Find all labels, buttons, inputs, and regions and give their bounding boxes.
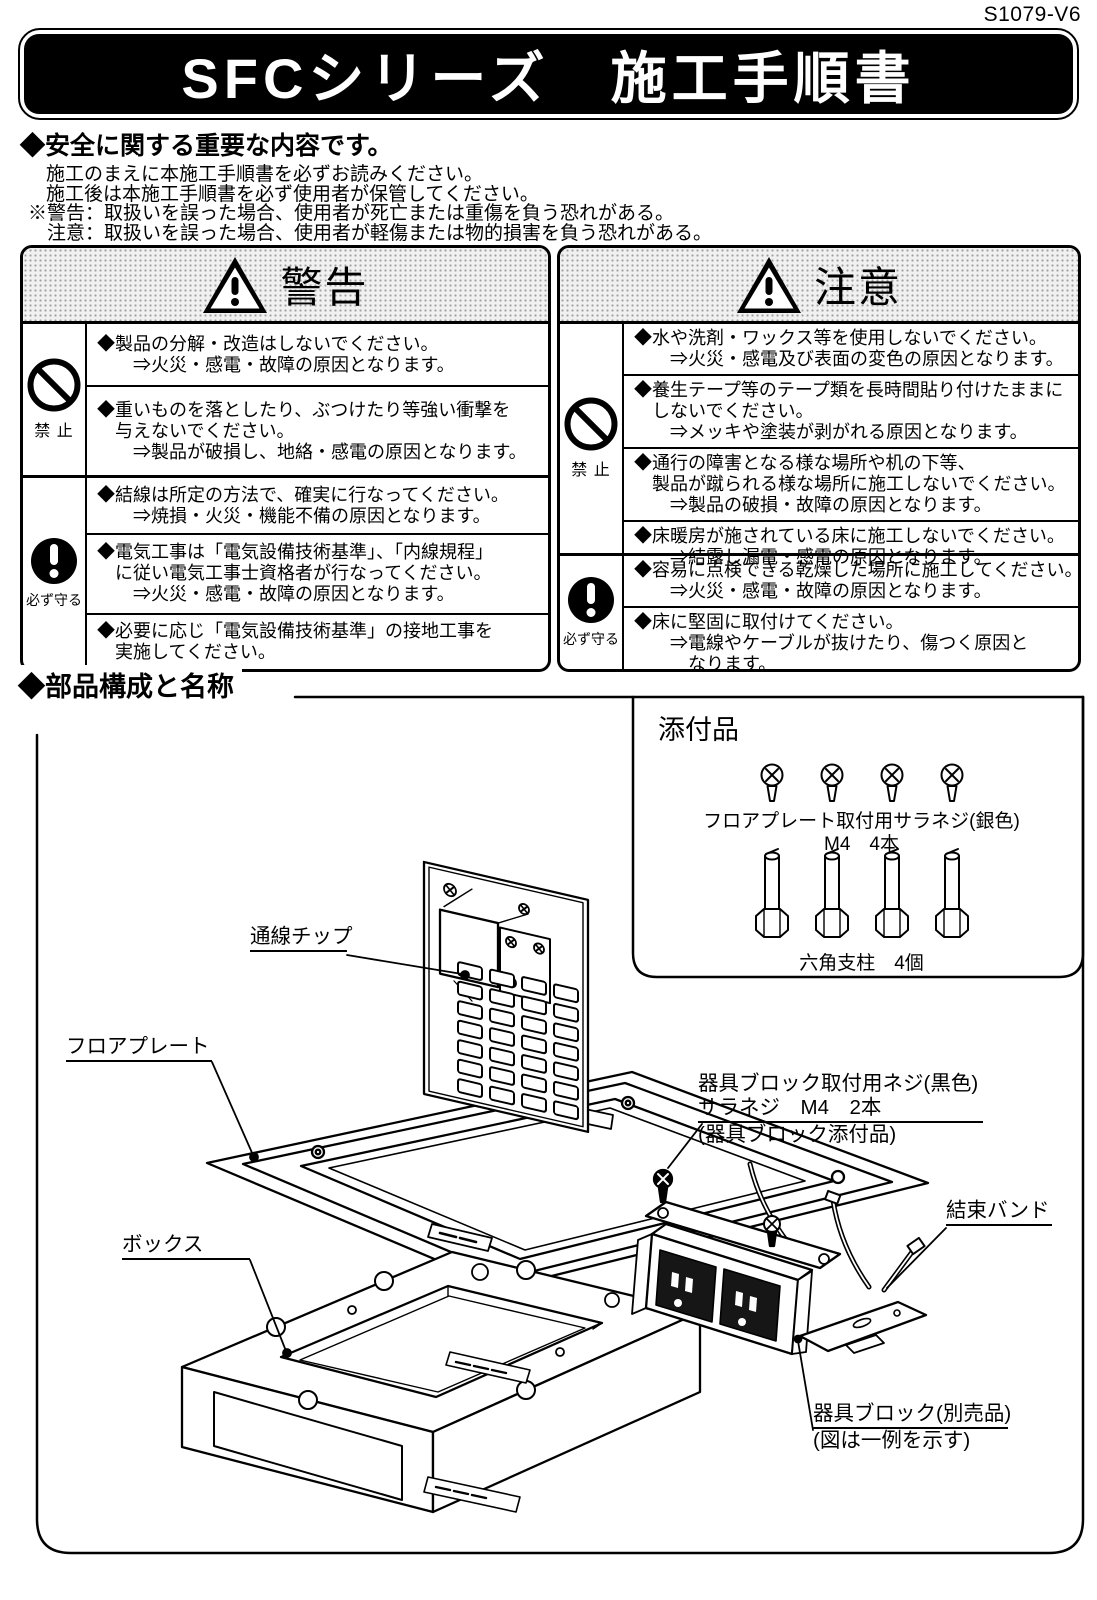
rule-line: 与えないでください。: [97, 421, 544, 442]
box-drawing: [182, 1252, 700, 1512]
flat-screws-drawing: [762, 765, 963, 802]
lid-drawing: [424, 862, 588, 1132]
rule-row: ◆水や洗剤・ワックス等を使用しないでください。 ⇒火災・感電及び表面の変色の原因…: [624, 324, 1078, 374]
rule-row: ◆養生テープ等のテープ類を長時間貼り付けたままに しないでください。 ⇒メッキや…: [624, 374, 1078, 447]
rule-line: ◆水や洗剤・ワックス等を使用しないでください。: [634, 328, 1074, 349]
safety-line: 注意：取扱いを誤った場合、使用者が軽傷または物的損害を負う恐れがある。: [28, 224, 1082, 244]
caution-table: 注意 禁 止 ◆水や洗剤・ワックス等を使用しないでください。 ⇒火災・感電及び表…: [557, 245, 1081, 672]
caution-table-title: 注意: [814, 254, 902, 315]
rule-line: ◆床に堅固に取付けてください。: [634, 612, 1074, 633]
rule-line: ◆床暖房が施されている床に施工しないでください。: [634, 526, 1074, 547]
document-code: S1079-V6: [984, 3, 1081, 27]
caution-table-header: 注意: [560, 248, 1078, 324]
label-box: ボックス: [122, 1233, 250, 1260]
rule-line: ◆必要に応じ「電気設備技術基準」の接地工事を: [97, 621, 544, 642]
warning-triangle-icon: [202, 256, 268, 314]
safety-notice-section: ◆安全に関する重要な内容です。 施工のまえに本施工手順書を必ずお読みください。 …: [20, 126, 1082, 243]
rule-row: ◆製品の分解・改造はしないでください。 ⇒火災・感電・故障の原因となります。: [87, 324, 548, 385]
rule-line: ⇒火災・感電・故障の原因となります。: [634, 581, 1074, 602]
rule-line: ⇒火災・感電・故障の原因となります。: [97, 584, 544, 605]
parts-section: ◆部品構成と名称 添付品 フロアプレート取付用サラネジ(銀色) M4 4本 六角…: [0, 660, 1097, 1560]
warning-table-title: 警告: [280, 254, 368, 315]
rule-rows: ◆結線は所定の方法で、確実に行なってください。 ⇒焼損・火災・機能不備の原因とな…: [87, 478, 548, 669]
safety-line: 施工後は本施工手順書を必ず使用者が保管してください。: [46, 185, 1082, 205]
label-wiring-chip: 通線チップ: [250, 925, 347, 952]
safety-line: 施工のまえに本施工手順書を必ずお読みください。: [46, 165, 1082, 185]
rule-rows: ◆容易に点検できる乾燥した場所に施工してください。 ⇒火災・感電・故障の原因とな…: [624, 556, 1078, 669]
label-block-screw-line3: (器具ブロック添付品): [698, 1123, 896, 1146]
rule-line: ⇒火災・感電及び表面の変色の原因となります。: [634, 349, 1074, 370]
label-device-block: 器具ブロック(別売品) (図は一例を示す): [813, 1402, 1008, 1453]
prohibition-label: 禁 止: [34, 417, 73, 441]
rule-line: ◆養生テープ等のテープ類を長時間貼り付けたままに: [634, 380, 1074, 401]
rule-line: ◆重いものを落としたり、ぶつけたり等強い衝撃を: [97, 400, 544, 421]
mandatory-label: 必ず守る: [26, 590, 82, 610]
rule-line: 製品が蹴られる様な場所に施工しないでください。: [634, 474, 1074, 495]
mandatory-icon-cell: 必ず守る: [23, 478, 87, 669]
rule-line: ⇒焼損・火災・機能不備の原因となります。: [97, 506, 544, 527]
prohibition-icon-cell: 禁 止: [560, 324, 624, 553]
mandatory-group: 必ず守る ◆容易に点検できる乾燥した場所に施工してください。 ⇒火災・感電・故障…: [560, 553, 1078, 669]
standoff-caption: 六角支柱 4個: [640, 948, 1083, 975]
instruction-sheet: S1079-V6 SFCシリーズ 施工手順書 ◆安全に関する重要な内容です。 施…: [0, 0, 1097, 1600]
safety-line: ※警告：取扱いを誤った場合、使用者が死亡または重傷を負う恐れがある。: [28, 204, 1082, 224]
rule-line: ⇒製品が破損し、地絡・感電の原因となります。: [97, 442, 544, 463]
prohibition-icon: [564, 397, 618, 451]
prohibition-icon-cell: 禁 止: [23, 324, 87, 475]
label-device-block-line2: (図は一例を示す): [813, 1429, 970, 1452]
rule-line: に従い電気工事士資格者が行なってください。: [97, 563, 544, 584]
rule-line: ◆通行の障害となる様な場所や机の下等、: [634, 453, 1074, 474]
rule-line: ⇒電線やケーブルが抜けたり、傷つく原因と: [634, 633, 1074, 654]
warning-table: 警告 禁 止 ◆製品の分解・改造はしないでください。 ⇒火災・感電・故障の原因と…: [20, 245, 551, 672]
warning-triangle-icon: [736, 256, 802, 314]
rule-line: ◆容易に点検できる乾燥した場所に施工してください。: [634, 560, 1074, 581]
mandatory-group: 必ず守る ◆結線は所定の方法で、確実に行なってください。 ⇒焼損・火災・機能不備…: [23, 475, 548, 669]
rule-line: ⇒メッキや塗装が剥がれる原因となります。: [634, 422, 1074, 443]
rule-rows: ◆水や洗剤・ワックス等を使用しないでください。 ⇒火災・感電及び表面の変色の原因…: [624, 324, 1078, 553]
rule-row: ◆通行の障害となる様な場所や机の下等、 製品が蹴られる様な場所に施工しないでくだ…: [624, 447, 1078, 520]
rule-rows: ◆製品の分解・改造はしないでください。 ⇒火災・感電・故障の原因となります。 ◆…: [87, 324, 548, 475]
rule-row: ◆結線は所定の方法で、確実に行なってください。 ⇒焼損・火災・機能不備の原因とな…: [87, 478, 548, 532]
rule-line: ⇒火災・感電・故障の原因となります。: [97, 355, 544, 376]
prohibition-group: 禁 止 ◆水や洗剤・ワックス等を使用しないでください。 ⇒火災・感電及び表面の変…: [560, 324, 1078, 553]
hex-standoffs-drawing: [756, 849, 968, 937]
caution-table-body: 禁 止 ◆水や洗剤・ワックス等を使用しないでください。 ⇒火災・感電及び表面の変…: [560, 324, 1078, 669]
rule-row: ◆容易に点検できる乾燥した場所に施工してください。 ⇒火災・感電・故障の原因とな…: [624, 556, 1078, 606]
title-banner: SFCシリーズ 施工手順書: [18, 28, 1079, 120]
label-cable-tie: 結束バンド: [946, 1199, 1052, 1226]
safety-heading: ◆安全に関する重要な内容です。: [20, 126, 1082, 162]
label-floor-plate: フロアプレート: [66, 1035, 212, 1062]
label-block-screw-line2: サラネジ M4 2本: [698, 1096, 983, 1123]
rule-line: ◆結線は所定の方法で、確実に行なってください。: [97, 485, 544, 506]
rule-row: ◆重いものを落としたり、ぶつけたり等強い衝撃を 与えないでください。 ⇒製品が破…: [87, 385, 548, 475]
mandatory-icon: [567, 576, 615, 624]
label-block-screw: 器具ブロック取付用ネジ(黒色) サラネジ M4 2本 (器具ブロック添付品): [698, 1072, 983, 1147]
screw-caption-qty: M4 4本: [640, 829, 1083, 856]
rule-line: ⇒製品の破損・故障の原因となります。: [634, 495, 1074, 516]
label-device-block-line1: 器具ブロック(別売品): [813, 1402, 1008, 1429]
rule-line: しないでください。: [634, 401, 1074, 422]
accessories-title: 添付品: [658, 708, 739, 747]
rule-row: ◆電気工事は「電気設備技術基準」、「内線規程」 に従い電気工事士資格者が行なって…: [87, 533, 548, 613]
mandatory-icon-cell: 必ず守る: [560, 556, 624, 669]
prohibition-group: 禁 止 ◆製品の分解・改造はしないでください。 ⇒火災・感電・故障の原因となりま…: [23, 324, 548, 475]
rule-line: ◆製品の分解・改造はしないでください。: [97, 334, 544, 355]
prohibition-icon: [27, 358, 81, 412]
warning-table-header: 警告: [23, 248, 548, 324]
title-banner-fill: SFCシリーズ 施工手順書: [24, 34, 1073, 114]
rule-line: ◆電気工事は「電気設備技術基準」、「内線規程」: [97, 542, 544, 563]
warning-table-body: 禁 止 ◆製品の分解・改造はしないでください。 ⇒火災・感電・故障の原因となりま…: [23, 324, 548, 669]
page-title: SFCシリーズ 施工手順書: [181, 34, 915, 115]
label-block-screw-line1: 器具ブロック取付用ネジ(黒色): [698, 1072, 978, 1095]
prohibition-label: 禁 止: [571, 456, 610, 480]
mandatory-icon: [30, 537, 78, 585]
parts-heading: ◆部品構成と名称: [18, 665, 242, 704]
mandatory-label: 必ず守る: [563, 629, 619, 649]
